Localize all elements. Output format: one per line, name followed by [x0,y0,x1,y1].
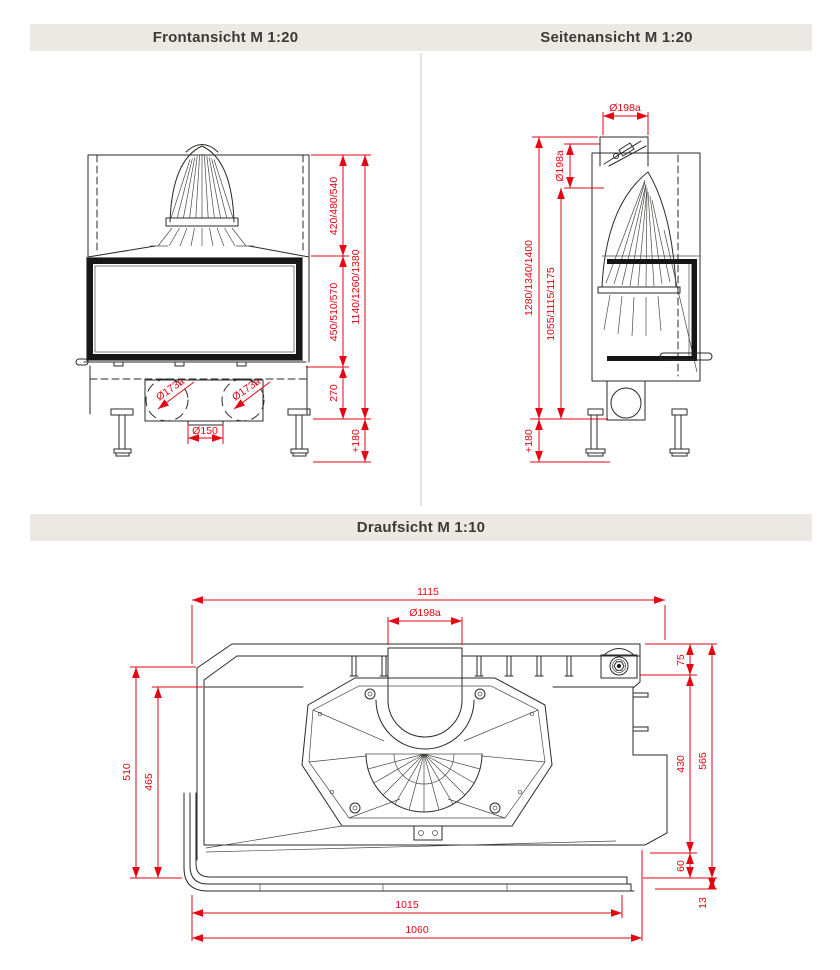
dim-top-depth-mid: 430 [675,755,687,773]
dim-side-feet: +180 [523,429,535,453]
dim-top-depth-top: 75 [675,654,687,666]
top-dimensions: 1115 Ø198a 75 430 60 565 13 510 465 1015… [121,586,717,941]
dim-top-frame: 13 [697,897,709,909]
dim-side-body: 1055/1115/1175 [545,267,557,341]
top-view: 1115 Ø198a 75 430 60 565 13 510 465 1015… [121,586,717,941]
top-bolts [318,689,534,813]
side-view-title: Seitenansicht M 1:20 [421,24,812,51]
side-air-intake [611,388,641,418]
header-bar-middle: Draufsicht M 1:10 [30,514,812,541]
dim-top-depth-total: 565 [697,752,709,770]
dim-top-left-inner: 465 [143,773,155,791]
dim-front-base: 270 [328,384,340,402]
side-glass-frame-top [607,259,697,264]
front-view-title: Frontansicht M 1:20 [30,24,421,51]
dim-top-depth-bottom: 60 [675,860,687,872]
header-bar-top: Frontansicht M 1:20 Seitenansicht M 1:20 [30,24,812,51]
top-octagon-plate [302,678,552,826]
dim-front-feet: +180 [350,429,362,453]
front-view: 420/480/540 450/510/570 270 1140/1260/13… [76,145,371,463]
top-fan-fins [366,754,482,812]
dim-front-upper: 420/480/540 [328,177,340,236]
dim-side-flue-side: Ø198a [554,150,566,182]
side-glass-pane [692,259,698,361]
top-flue-duct [388,648,462,700]
dim-top-bottom-outer: 1060 [405,924,429,936]
dim-front-window: 450/510/570 [328,283,340,342]
dim-front-air: Ø150 [192,425,218,437]
side-dimensions: Ø198a Ø198a 1280/1340/1400 1055/1115/117… [523,102,648,462]
dim-front-total: 1140/1260/1380 [350,249,362,324]
dim-top-flue: Ø198a [409,607,441,619]
view-divider [420,53,422,506]
side-feet [586,409,689,456]
top-view-title: Draufsicht M 1:10 [30,514,812,541]
top-control-knob [601,649,637,679]
dim-side-total: 1280/1340/1400 [523,240,535,316]
side-view: Ø198a Ø198a 1280/1340/1400 1055/1115/117… [523,102,712,462]
front-glass-window [90,261,299,357]
dim-top-width-total: 1115 [417,586,439,598]
dim-top-left-outer: 510 [121,763,133,781]
dim-side-flue-top: Ø198a [609,102,641,114]
dim-top-bottom-inner: 1015 [395,899,419,911]
top-body-outline [197,644,667,860]
drawing-sheet: { "headers": { "front": "Frontansicht M … [0,0,840,970]
